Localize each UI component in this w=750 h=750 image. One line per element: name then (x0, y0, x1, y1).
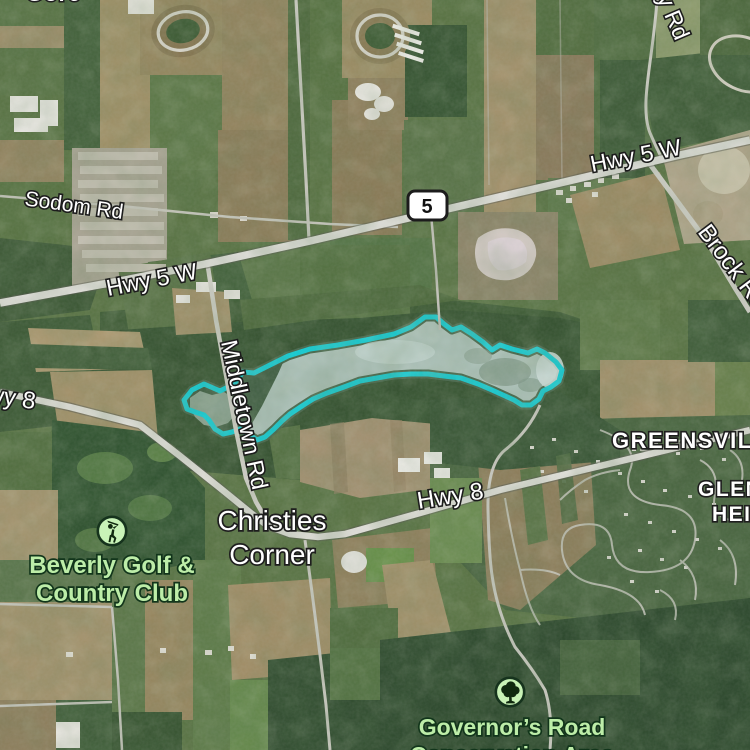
svg-text:Country Club: Country Club (36, 580, 188, 607)
svg-text:Gore: Gore (26, 0, 81, 6)
svg-text:GLENWOOD: GLENWOOD (698, 478, 750, 501)
svg-text:Beverly Golf &: Beverly Golf & (29, 552, 194, 579)
svg-text:Conservation Area: Conservation Area (410, 742, 614, 750)
svg-text:Governor’s Road: Governor’s Road (419, 714, 606, 740)
svg-text:5: 5 (421, 196, 432, 218)
svg-text:Christies: Christies (218, 505, 327, 536)
svg-text:GREENSVILLE: GREENSVILLE (612, 428, 750, 453)
svg-text:HEIGHTS: HEIGHTS (712, 503, 750, 526)
svg-text:Corner: Corner (229, 539, 315, 570)
